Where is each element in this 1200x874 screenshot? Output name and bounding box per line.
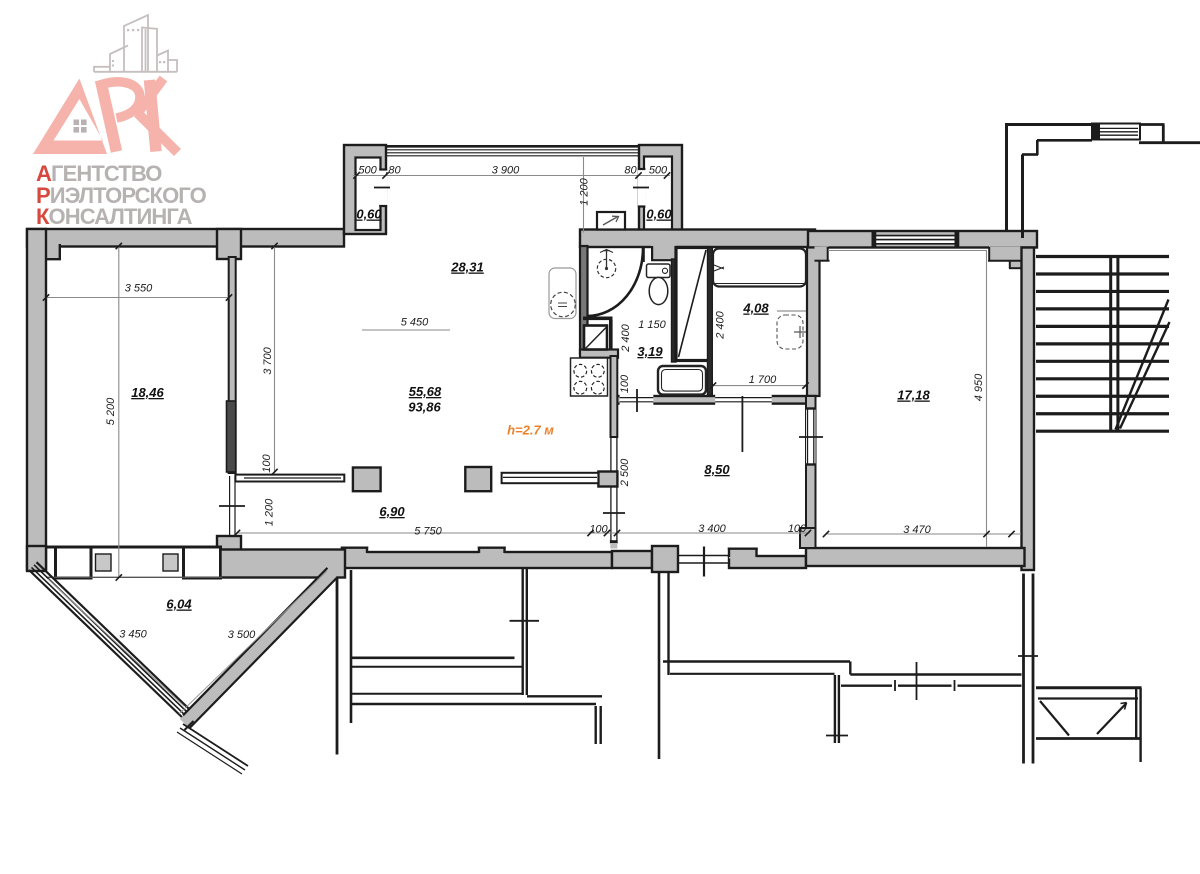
svg-text:5 200: 5 200 (105, 397, 117, 425)
svg-text:17,18: 17,18 (897, 388, 930, 403)
svg-text:.500: .500 (355, 165, 377, 177)
svg-text:5 450: 5 450 (401, 317, 429, 329)
svg-text:6,04: 6,04 (166, 597, 192, 612)
svg-text:5 750: 5 750 (414, 526, 442, 538)
svg-text:0,60: 0,60 (356, 207, 382, 222)
svg-text:100: 100 (589, 524, 608, 536)
svg-text:3 500: 3 500 (228, 629, 256, 641)
svg-text:6,90: 6,90 (379, 504, 405, 519)
svg-text:0,60: 0,60 (646, 207, 672, 222)
svg-text:55,68: 55,68 (409, 384, 442, 399)
svg-text:.80: .80 (385, 165, 401, 177)
svg-text:80: 80 (624, 165, 637, 177)
svg-text:18,46: 18,46 (131, 385, 164, 400)
svg-text:3 700: 3 700 (262, 346, 274, 374)
svg-text:3 550: 3 550 (125, 283, 153, 295)
svg-text:1 700: 1 700 (749, 374, 777, 386)
svg-text:3,19: 3,19 (637, 344, 663, 359)
svg-text:4,08: 4,08 (742, 301, 769, 316)
svg-text:100: 100 (261, 453, 273, 472)
svg-text:4 950: 4 950 (973, 373, 985, 401)
svg-text:2 400: 2 400 (620, 323, 632, 352)
svg-text:3 450: 3 450 (119, 629, 147, 641)
svg-text:h=2.7 м: h=2.7 м (507, 423, 554, 438)
svg-text:3 470: 3 470 (903, 524, 931, 536)
svg-text:1 200: 1 200 (579, 177, 591, 205)
svg-text:100: 100 (788, 523, 807, 535)
svg-text:100: 100 (619, 374, 631, 393)
svg-text:28,31: 28,31 (450, 260, 484, 275)
svg-text:3 400: 3 400 (698, 523, 726, 535)
svg-text:2 400: 2 400 (715, 310, 727, 339)
svg-text:1 200: 1 200 (264, 498, 276, 526)
svg-text:КОНСАЛТИНГА: КОНСАЛТИНГА (36, 204, 193, 229)
svg-text:2 500: 2 500 (619, 458, 631, 487)
svg-text:1 150: 1 150 (638, 319, 666, 331)
svg-text:500: 500 (649, 165, 668, 177)
svg-text:8,50: 8,50 (704, 462, 730, 477)
svg-text:3 900: 3 900 (492, 165, 520, 177)
svg-text:93,86: 93,86 (408, 400, 441, 415)
